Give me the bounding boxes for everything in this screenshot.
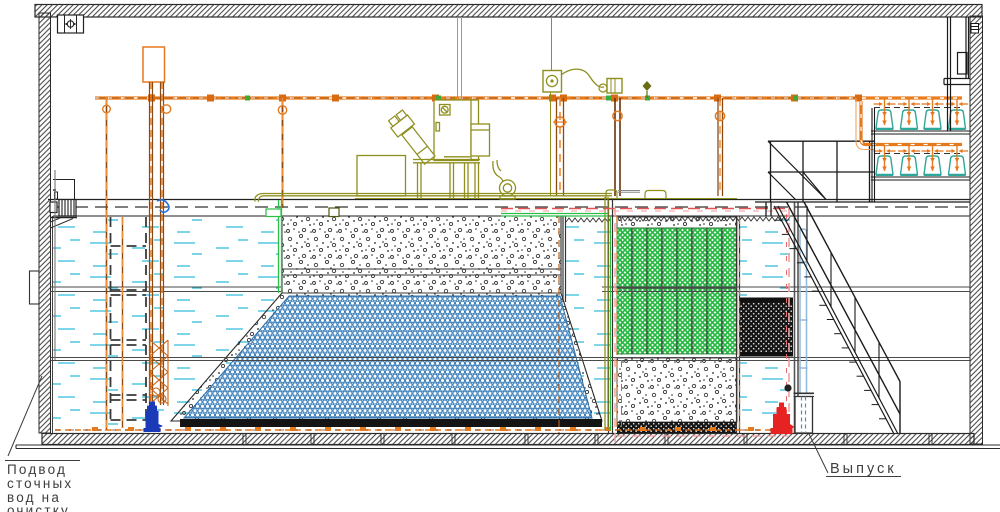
svg-text:Выпуск: Выпуск — [830, 461, 897, 477]
svg-text:сточных: сточных — [7, 476, 73, 491]
svg-text:очистку: очистку — [7, 503, 70, 512]
svg-text:Подвод: Подвод — [7, 462, 67, 477]
